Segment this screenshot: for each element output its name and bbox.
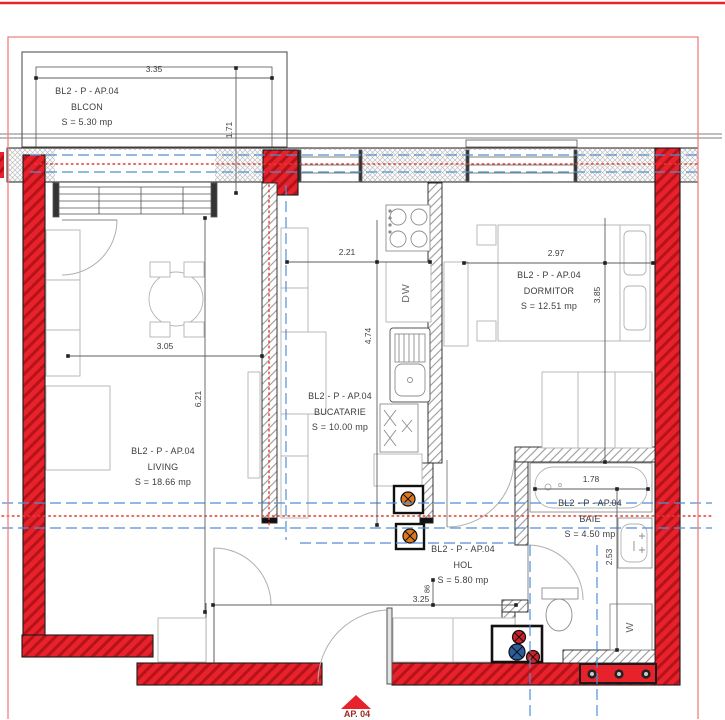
room-label-hall: BL2 - P - AP.04 HOL S = 5.80 mp bbox=[431, 542, 495, 589]
room-label-balcony: BL2 - P - AP.04 BLCON S = 5.30 mp bbox=[55, 84, 119, 131]
room-name: BLCON bbox=[55, 99, 119, 115]
room-code: BL2 - P - AP.04 bbox=[308, 389, 372, 405]
dim-hall-nib: 86 bbox=[423, 585, 432, 593]
room-name: HOL bbox=[431, 557, 495, 573]
furniture-bedroom bbox=[444, 225, 652, 448]
dim-living-width: 3.05 bbox=[157, 341, 174, 351]
toilet-icon bbox=[542, 588, 578, 631]
bedroom-door bbox=[447, 460, 514, 527]
room-code: BL2 - P - AP.04 bbox=[558, 496, 622, 512]
floor-plan: BL2 - P - AP.04 BLCON S = 5.30 mp BL2 - … bbox=[0, 0, 725, 720]
dim-living-length: 6.21 bbox=[193, 391, 203, 408]
room-label-bathroom: BL2 - P - AP.04 BAIE S = 4.50 mp bbox=[558, 496, 622, 543]
furniture-kitchen bbox=[281, 205, 431, 518]
room-code: BL2 - P - AP.04 bbox=[431, 542, 495, 558]
dim-bath-length: 2.53 bbox=[604, 549, 614, 566]
room-code: BL2 - P - AP.04 bbox=[517, 268, 581, 284]
room-area: S = 5.80 mp bbox=[431, 573, 495, 589]
dim-bedroom-width: 2.97 bbox=[548, 248, 565, 258]
entrance-door bbox=[318, 608, 392, 684]
washing-machine-label: W bbox=[624, 622, 636, 633]
dim-bath-width: 1.78 bbox=[583, 474, 600, 484]
fridge-icon bbox=[380, 404, 418, 452]
dim-kitchen-width: 2.21 bbox=[339, 247, 356, 257]
sink-icon bbox=[390, 328, 430, 402]
unit-marker-arrow bbox=[341, 695, 371, 709]
stove-icon bbox=[386, 205, 430, 251]
sink-bathroom-icon bbox=[618, 518, 652, 568]
dishwasher-label: DW bbox=[400, 283, 412, 303]
dim-balcony-width: 3.35 bbox=[146, 64, 163, 74]
slab-lines bbox=[0, 134, 722, 138]
room-name: BUCATARIE bbox=[308, 404, 372, 420]
room-code: BL2 - P - AP.04 bbox=[55, 84, 119, 100]
wardrobe bbox=[542, 372, 652, 448]
unit-marker-label: AP. 04 bbox=[344, 709, 370, 719]
room-label-living: BL2 - P - AP.04 LIVING S = 18.66 mp bbox=[131, 444, 195, 491]
room-name: LIVING bbox=[131, 459, 195, 475]
dim-kitchen-length: 4.74 bbox=[363, 328, 373, 345]
living-door bbox=[214, 548, 271, 605]
dim-hall-width: 3.25 bbox=[413, 594, 430, 604]
dim-balcony-depth: 1.71 bbox=[224, 122, 234, 139]
room-area: S = 18.66 mp bbox=[131, 475, 195, 491]
room-label-bedroom: BL2 - P - AP.04 DORMITOR S = 12.51 mp bbox=[517, 268, 581, 315]
room-area: S = 12.51 mp bbox=[517, 299, 581, 315]
room-area: S = 10.00 mp bbox=[308, 420, 372, 436]
room-code: BL2 - P - AP.04 bbox=[131, 444, 195, 460]
room-name: BAIE bbox=[558, 511, 622, 527]
room-name: DORMITOR bbox=[517, 283, 581, 299]
room-area: S = 5.30 mp bbox=[55, 115, 119, 131]
dim-bedroom-length: 3.85 bbox=[592, 287, 602, 304]
room-area: S = 4.50 mp bbox=[558, 527, 622, 543]
room-label-kitchen: BL2 - P - AP.04 BUCATARIE S = 10.00 mp bbox=[308, 389, 372, 436]
